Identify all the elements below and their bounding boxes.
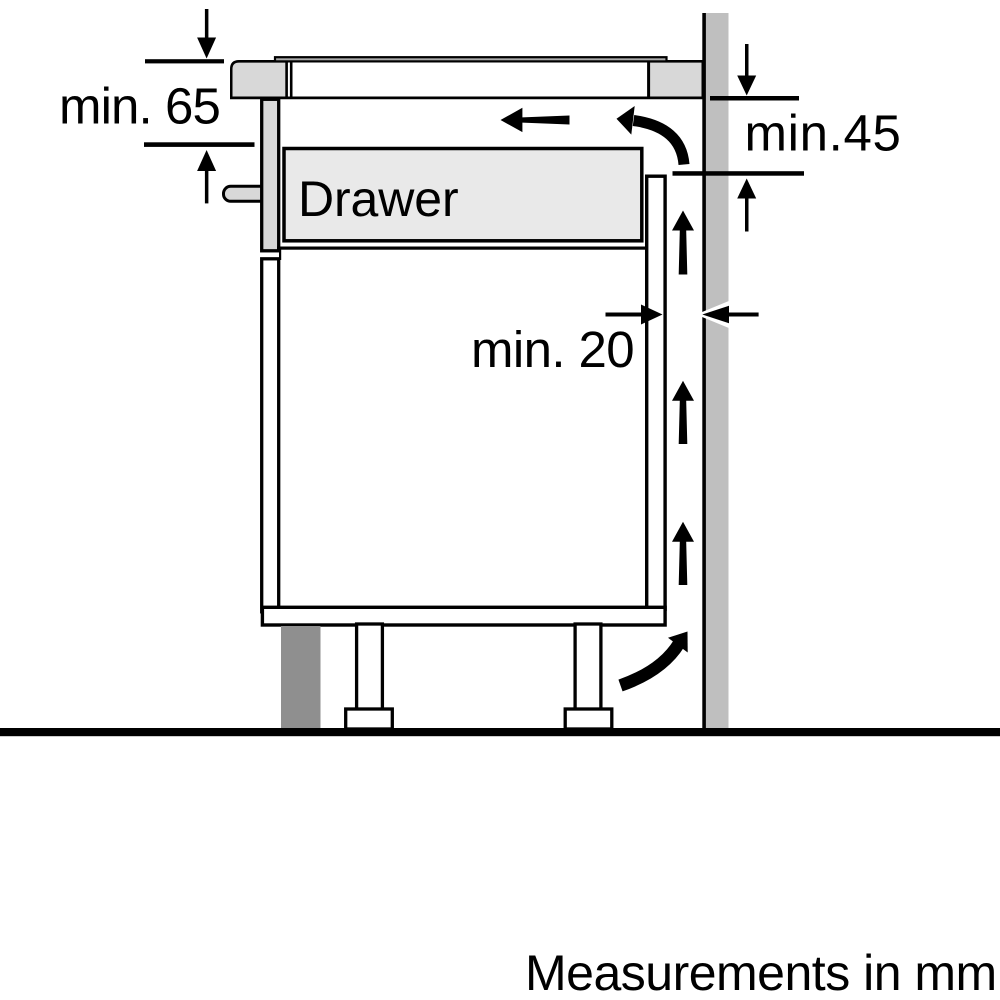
svg-text:min. 65: min. 65 (59, 78, 220, 135)
svg-text:min. 20: min. 20 (471, 321, 634, 378)
svg-text:Measurements in mm: Measurements in mm (525, 945, 997, 1000)
svg-text:min.45: min.45 (745, 105, 902, 162)
svg-text:Drawer: Drawer (298, 171, 459, 227)
